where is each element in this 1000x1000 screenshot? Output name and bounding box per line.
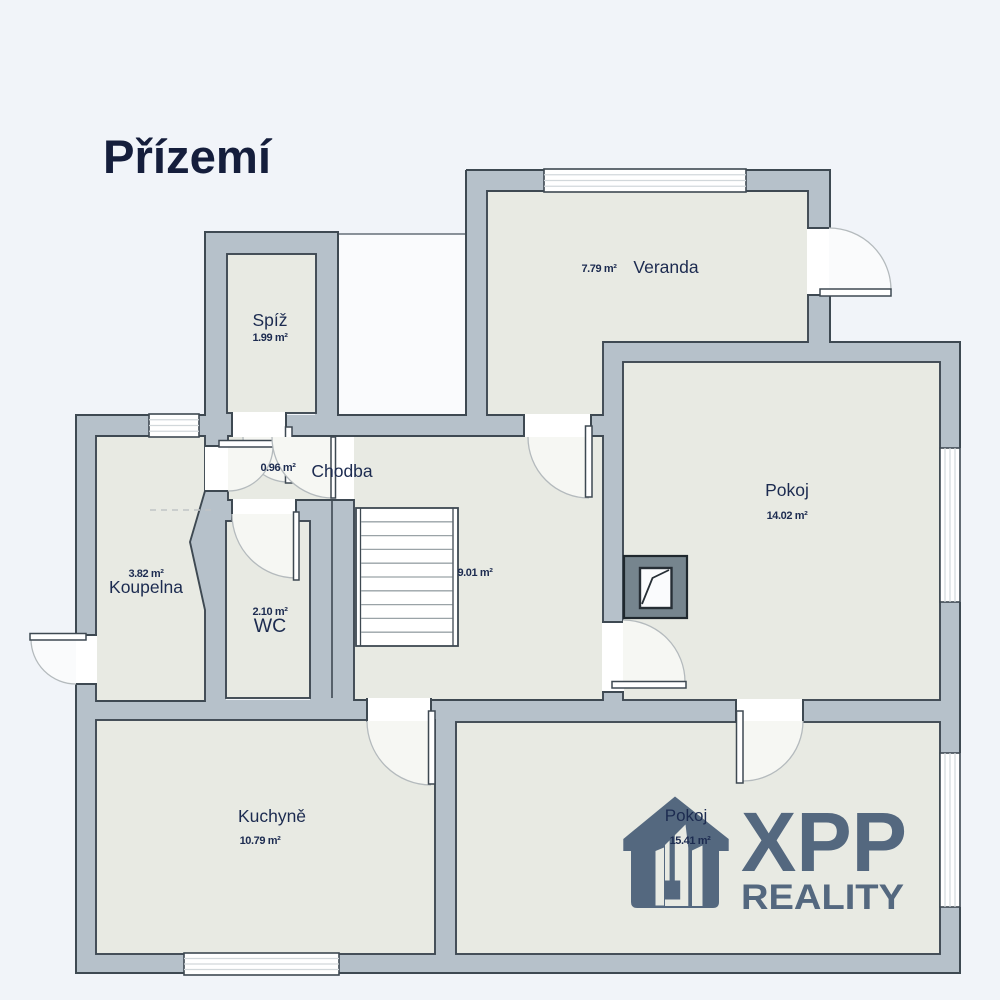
svg-text:Pokoj: Pokoj <box>765 480 809 500</box>
svg-text:14.02 m²: 14.02 m² <box>767 510 809 522</box>
svg-text:9.01 m²: 9.01 m² <box>457 567 493 579</box>
svg-text:WC: WC <box>254 615 287 637</box>
svg-text:15.41 m²: 15.41 m² <box>670 835 712 847</box>
svg-text:3.82 m²: 3.82 m² <box>128 568 164 580</box>
svg-text:Veranda: Veranda <box>633 257 698 277</box>
svg-text:Kuchyně: Kuchyně <box>238 806 306 826</box>
svg-text:1.99 m²: 1.99 m² <box>252 332 288 344</box>
svg-text:REALITY: REALITY <box>741 878 904 917</box>
svg-text:Chodba: Chodba <box>311 461 373 481</box>
svg-text:0.96 m²: 0.96 m² <box>260 462 296 474</box>
svg-text:7.79 m²: 7.79 m² <box>581 263 617 275</box>
svg-text:Přízemí: Přízemí <box>103 130 273 183</box>
svg-text:2.10 m²: 2.10 m² <box>252 606 288 618</box>
svg-text:Spíž: Spíž <box>252 310 287 330</box>
svg-text:XPP: XPP <box>741 795 907 889</box>
svg-text:10.79 m²: 10.79 m² <box>240 835 282 847</box>
svg-text:Koupelna: Koupelna <box>109 577 183 597</box>
svg-text:Pokoj: Pokoj <box>665 806 708 825</box>
